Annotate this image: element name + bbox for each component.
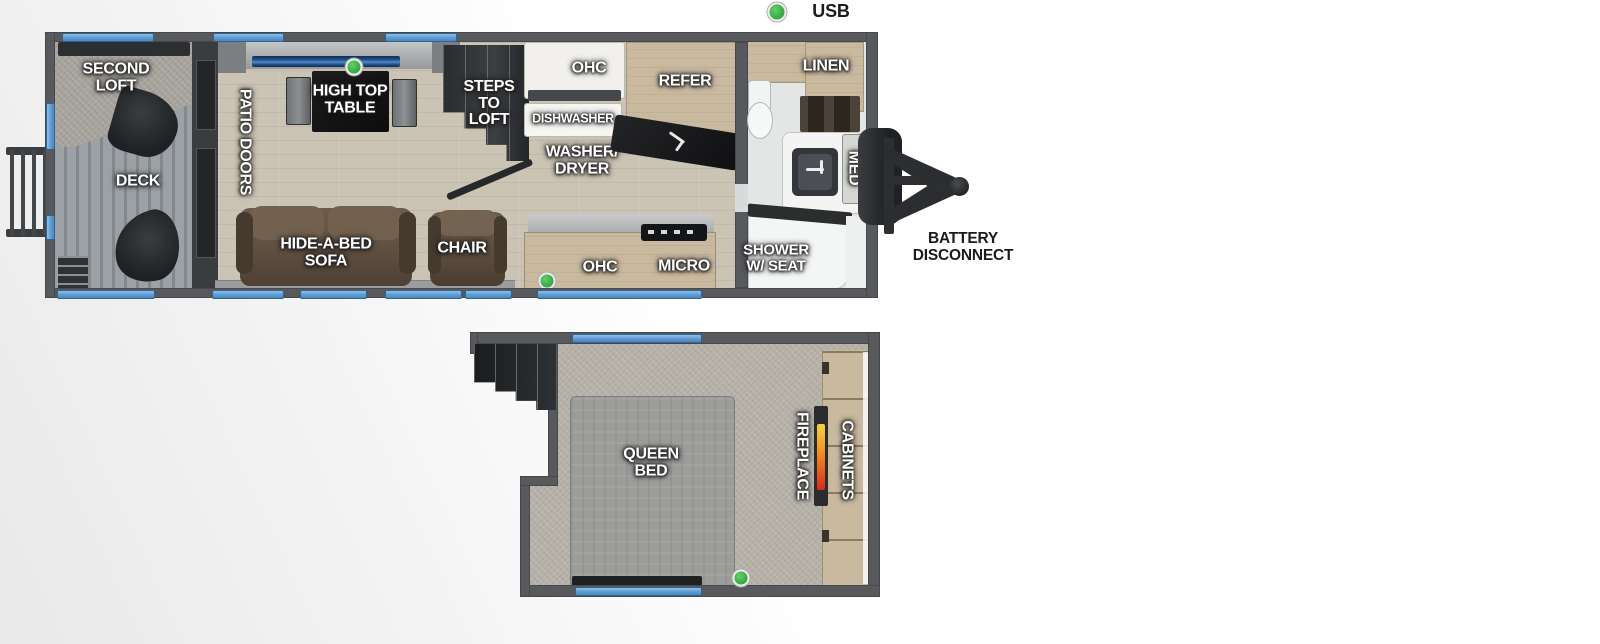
usb-dot-table <box>346 59 363 76</box>
window <box>465 290 512 299</box>
cabinet-handle <box>822 362 829 374</box>
ohc-under-ledge <box>528 90 621 101</box>
bath-counter <box>800 96 860 132</box>
loft-cabinets <box>822 350 869 586</box>
fireplace-flame <box>817 424 825 490</box>
overhead-cabinet-end <box>218 42 246 73</box>
stool <box>392 79 417 127</box>
floor1-wall-top <box>45 32 878 42</box>
usb-dot-kitchen <box>539 273 556 290</box>
deck-railing-rung <box>21 150 25 236</box>
stove-burners <box>648 230 700 234</box>
window <box>537 290 702 299</box>
stool <box>286 77 311 125</box>
usb-legend-dot <box>768 3 787 22</box>
window <box>575 587 702 596</box>
bath-sink-basin <box>798 154 832 190</box>
window <box>300 290 367 299</box>
second-loft-edge <box>58 42 190 56</box>
window <box>46 103 55 150</box>
deck-railing-rung <box>10 150 14 236</box>
deck-railing-rung <box>32 150 36 236</box>
window <box>212 290 284 299</box>
hitch-coupler-ball <box>950 177 969 196</box>
bath-faucet-icon <box>820 160 823 174</box>
floor2-wall-left-lower <box>520 476 530 597</box>
floor2-wall-right <box>868 332 880 597</box>
loft-carpet-nook <box>530 486 562 586</box>
shower-side <box>846 216 866 288</box>
patio-door-panel <box>196 60 216 130</box>
floorplan-canvas: USB HIGH TOP TABLE STEPS TO LOFT HIDE-A-… <box>0 0 1600 644</box>
chair-cushion <box>438 210 497 236</box>
chair-armrest <box>428 216 441 274</box>
bath-door-opening <box>735 184 748 212</box>
window <box>62 33 154 42</box>
window <box>46 215 55 240</box>
floor2-wall-jog <box>520 476 558 486</box>
window <box>572 334 702 343</box>
window <box>213 33 284 42</box>
high-top-table <box>312 71 389 132</box>
battery-disconnect-label: BATTERY DISCONNECT <box>913 230 1013 264</box>
sofa-cushion <box>328 206 402 240</box>
hitch-jack-handle <box>890 176 928 185</box>
sofa-armrest <box>399 212 416 274</box>
window <box>385 290 462 299</box>
queen-bed <box>570 396 735 588</box>
usb-dot-loft <box>733 570 750 587</box>
dishwasher-unit <box>524 103 622 137</box>
window <box>385 33 457 42</box>
shower <box>748 214 850 290</box>
sofa-cushion <box>250 206 324 240</box>
patio-door-panel <box>196 148 216 258</box>
bath-divider-wall <box>735 42 748 288</box>
usb-legend-label: USB <box>812 2 849 22</box>
loft-stairs <box>474 344 556 410</box>
cabinet-handle <box>822 530 829 542</box>
chair-armrest <box>494 216 507 274</box>
floor1-wall-left <box>45 32 55 298</box>
toilet-bowl <box>747 102 773 139</box>
window-counter-bar <box>252 56 400 67</box>
sofa-armrest <box>236 212 253 274</box>
window <box>57 290 155 299</box>
deck-steps <box>58 256 88 288</box>
